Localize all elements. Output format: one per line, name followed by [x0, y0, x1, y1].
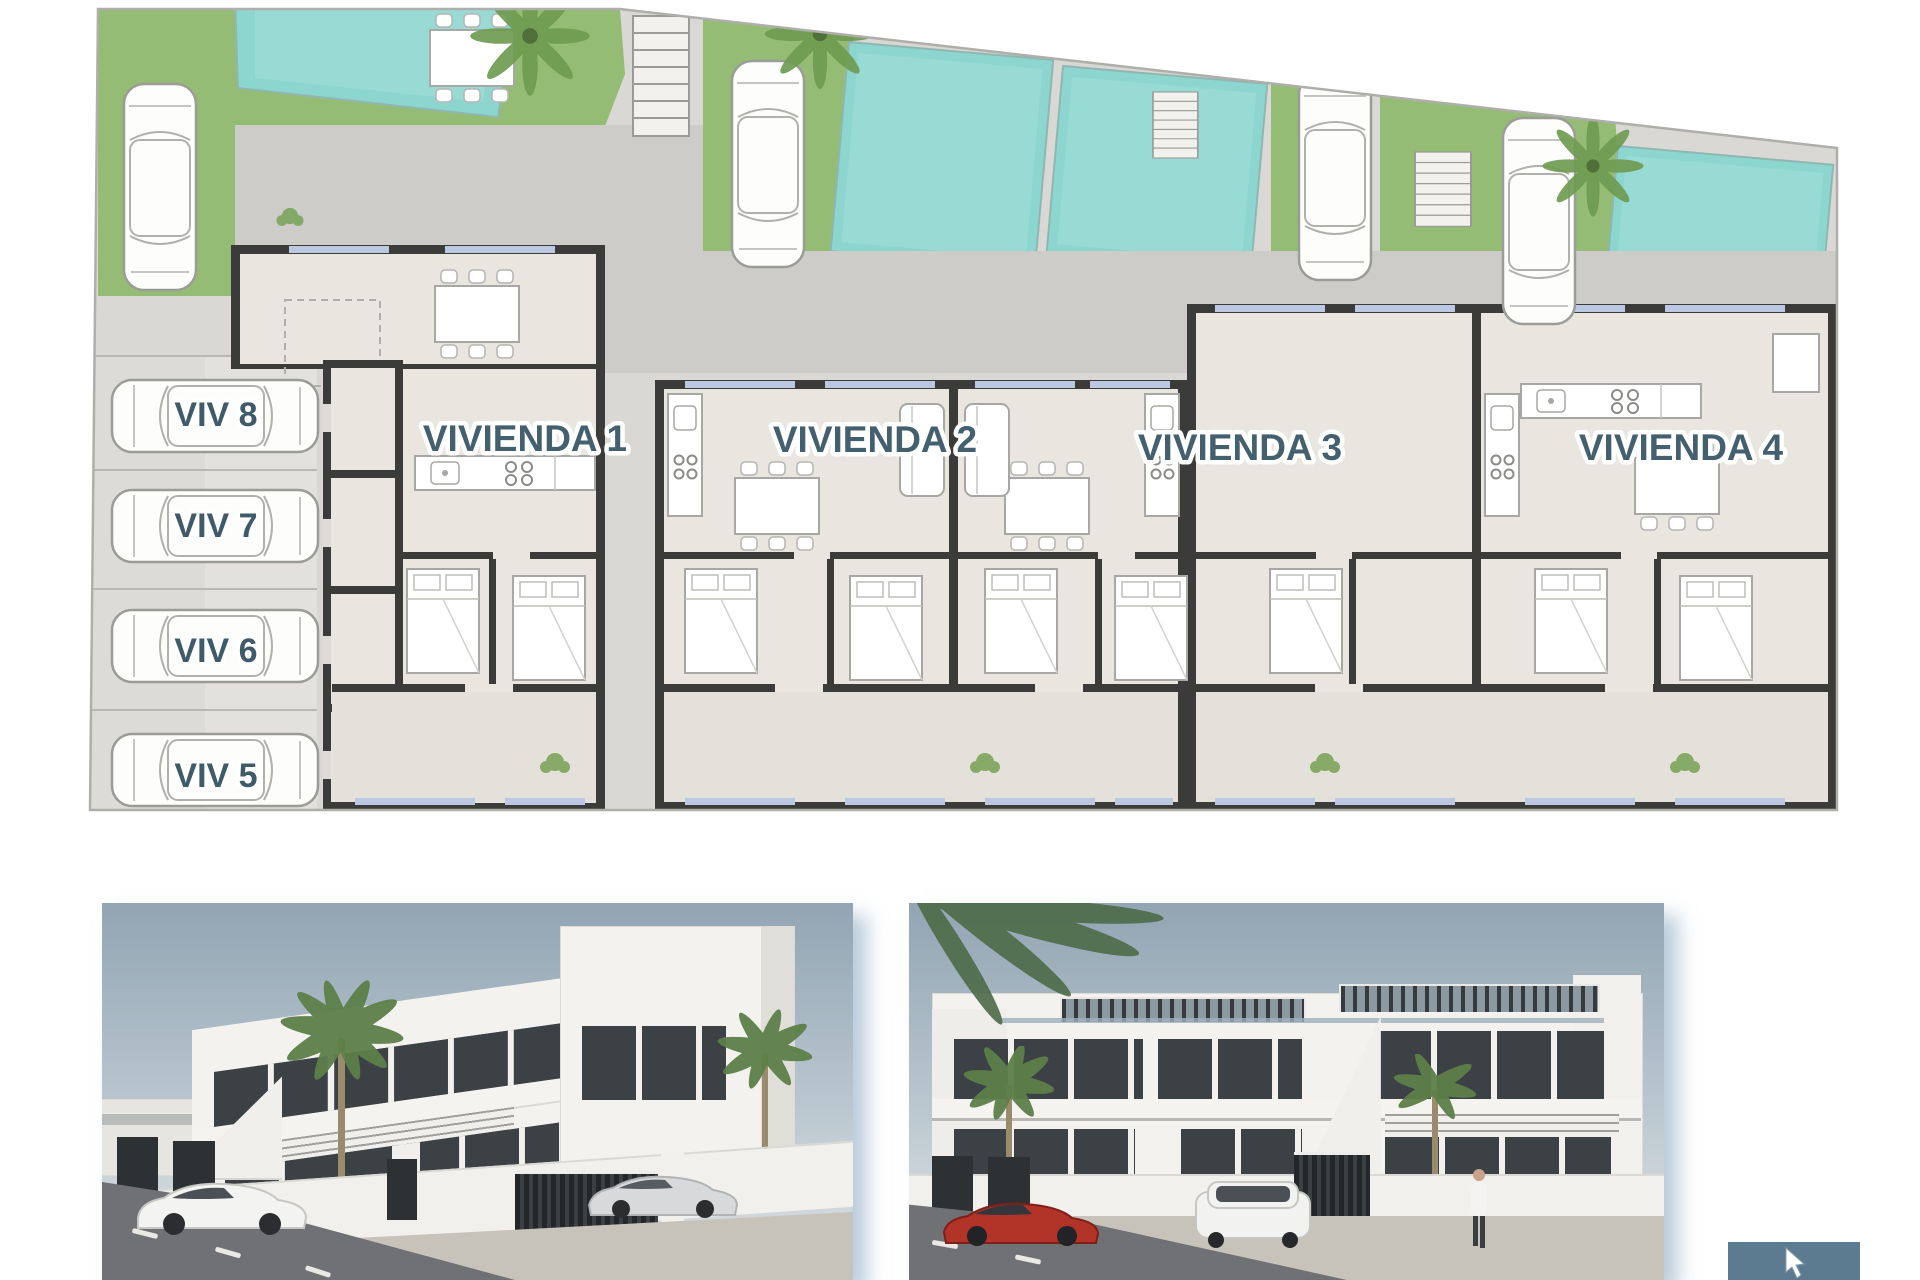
- exterior-render-left: [102, 903, 853, 1280]
- parking-label-viv-5: VIV 5: [174, 757, 257, 795]
- pool-2: [831, 42, 1054, 269]
- parking-label-viv-6: VIV 6: [174, 632, 257, 670]
- unit-label-vivienda-3: VIVIENDA 3: [1138, 427, 1342, 468]
- walkway: [605, 251, 1187, 373]
- cursor-icon: [1728, 1242, 1860, 1280]
- page: VIVIENDA 1 VIVIENDA 2 VIVIENDA 3 VIVIEND…: [0, 0, 1920, 1280]
- white-car: [132, 1174, 312, 1236]
- fence-panel: [387, 1159, 417, 1219]
- car-icon: [1503, 118, 1575, 324]
- exterior-render-right: [909, 903, 1664, 1280]
- silver-car: [583, 1167, 743, 1219]
- unit-label-vivienda-2: VIVIENDA 2: [773, 419, 977, 460]
- palm-icon: [1542, 115, 1643, 216]
- stairs-icon: [1153, 92, 1198, 158]
- stairs-icon: [1415, 152, 1471, 226]
- floor-plan: VIVIENDA 1 VIVIENDA 2 VIVIENDA 3 VIVIEND…: [85, 4, 1842, 816]
- upper-glass: [1158, 1039, 1301, 1099]
- car-icon: [124, 84, 196, 290]
- parking-label-viv-8: VIV 8: [174, 396, 257, 434]
- red-car: [939, 1190, 1104, 1248]
- roof-pergola: [1339, 984, 1600, 1012]
- overlay-button[interactable]: [1728, 1242, 1860, 1280]
- palm-icon: [267, 978, 417, 1188]
- palm-frond-icon: [909, 903, 1274, 1038]
- unit-label-vivienda-1: VIVIENDA 1: [423, 418, 627, 459]
- white-car: [1188, 1178, 1318, 1248]
- background-roofline: [102, 1114, 200, 1125]
- corner-glass: [582, 1026, 726, 1100]
- terraces: [332, 684, 1828, 802]
- car-icon: [1299, 74, 1371, 280]
- car-icon: [732, 61, 804, 267]
- parking-label-viv-7: VIV 7: [174, 507, 257, 545]
- pedestrian: [1464, 1167, 1494, 1255]
- stairs-icon: [633, 16, 689, 136]
- unit-label-vivienda-4: VIVIENDA 4: [1579, 427, 1784, 468]
